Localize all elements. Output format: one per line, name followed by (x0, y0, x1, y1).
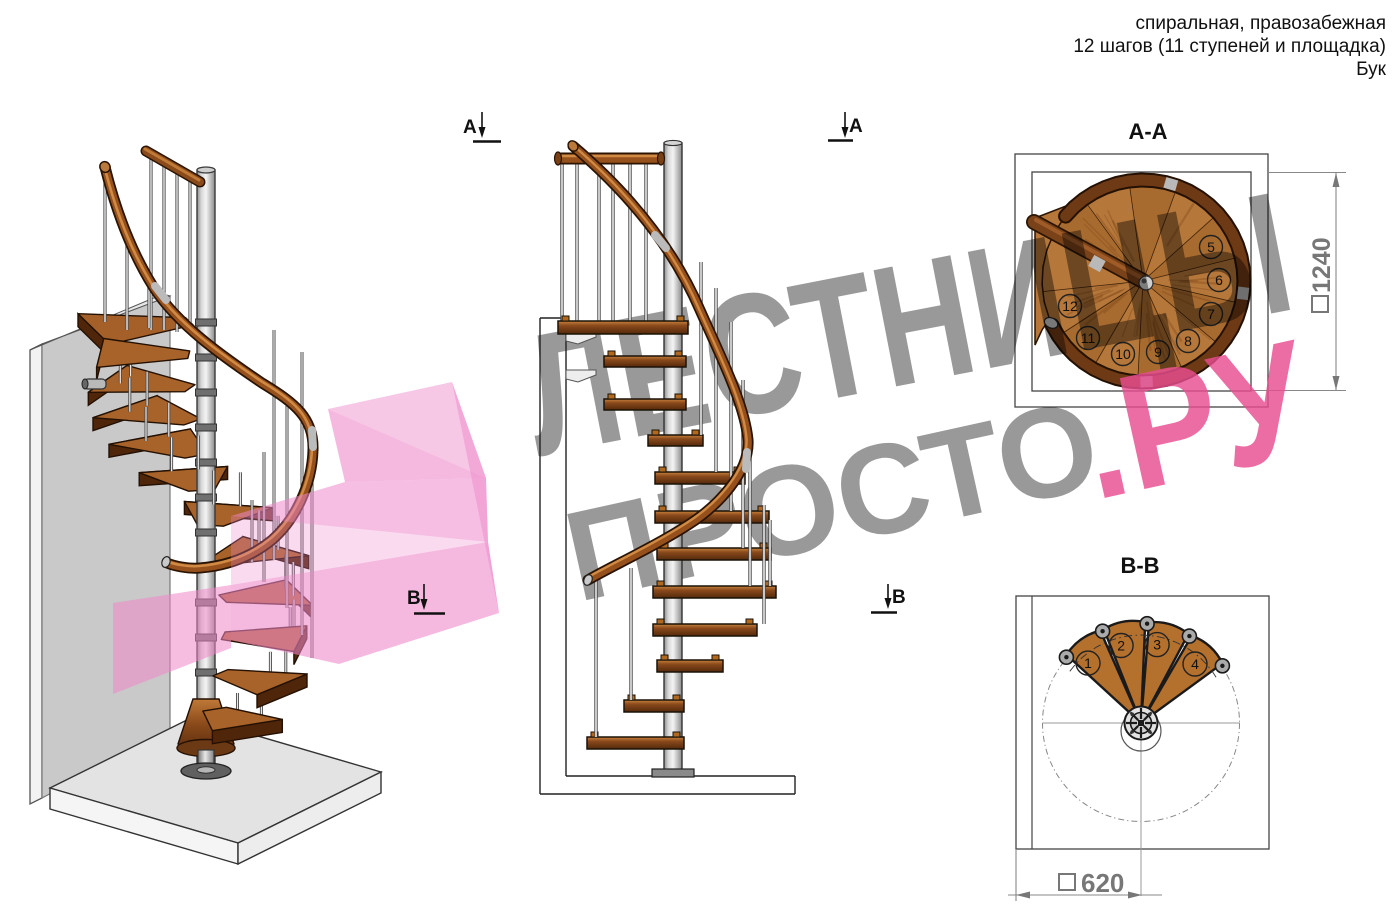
svg-text:В: В (892, 587, 906, 608)
svg-text:А: А (849, 116, 863, 137)
svg-text:620: 620 (1081, 868, 1124, 898)
svg-text:А-А: А-А (1128, 119, 1167, 144)
svg-text:3: 3 (1153, 637, 1161, 653)
svg-text:Бук: Бук (1356, 59, 1387, 80)
svg-text:1: 1 (1084, 655, 1092, 671)
svg-text:В-В: В-В (1120, 553, 1159, 578)
svg-text:12 шагов (11 ступеней и площад: 12 шагов (11 ступеней и площадка) (1073, 36, 1386, 57)
svg-text:А: А (463, 117, 477, 138)
svg-text:4: 4 (1191, 656, 1199, 672)
svg-text:В: В (407, 588, 421, 609)
svg-text:2: 2 (1117, 638, 1125, 654)
svg-text:1240: 1240 (1308, 237, 1336, 293)
svg-text:спиральная, правозабежная: спиральная, правозабежная (1136, 13, 1386, 34)
